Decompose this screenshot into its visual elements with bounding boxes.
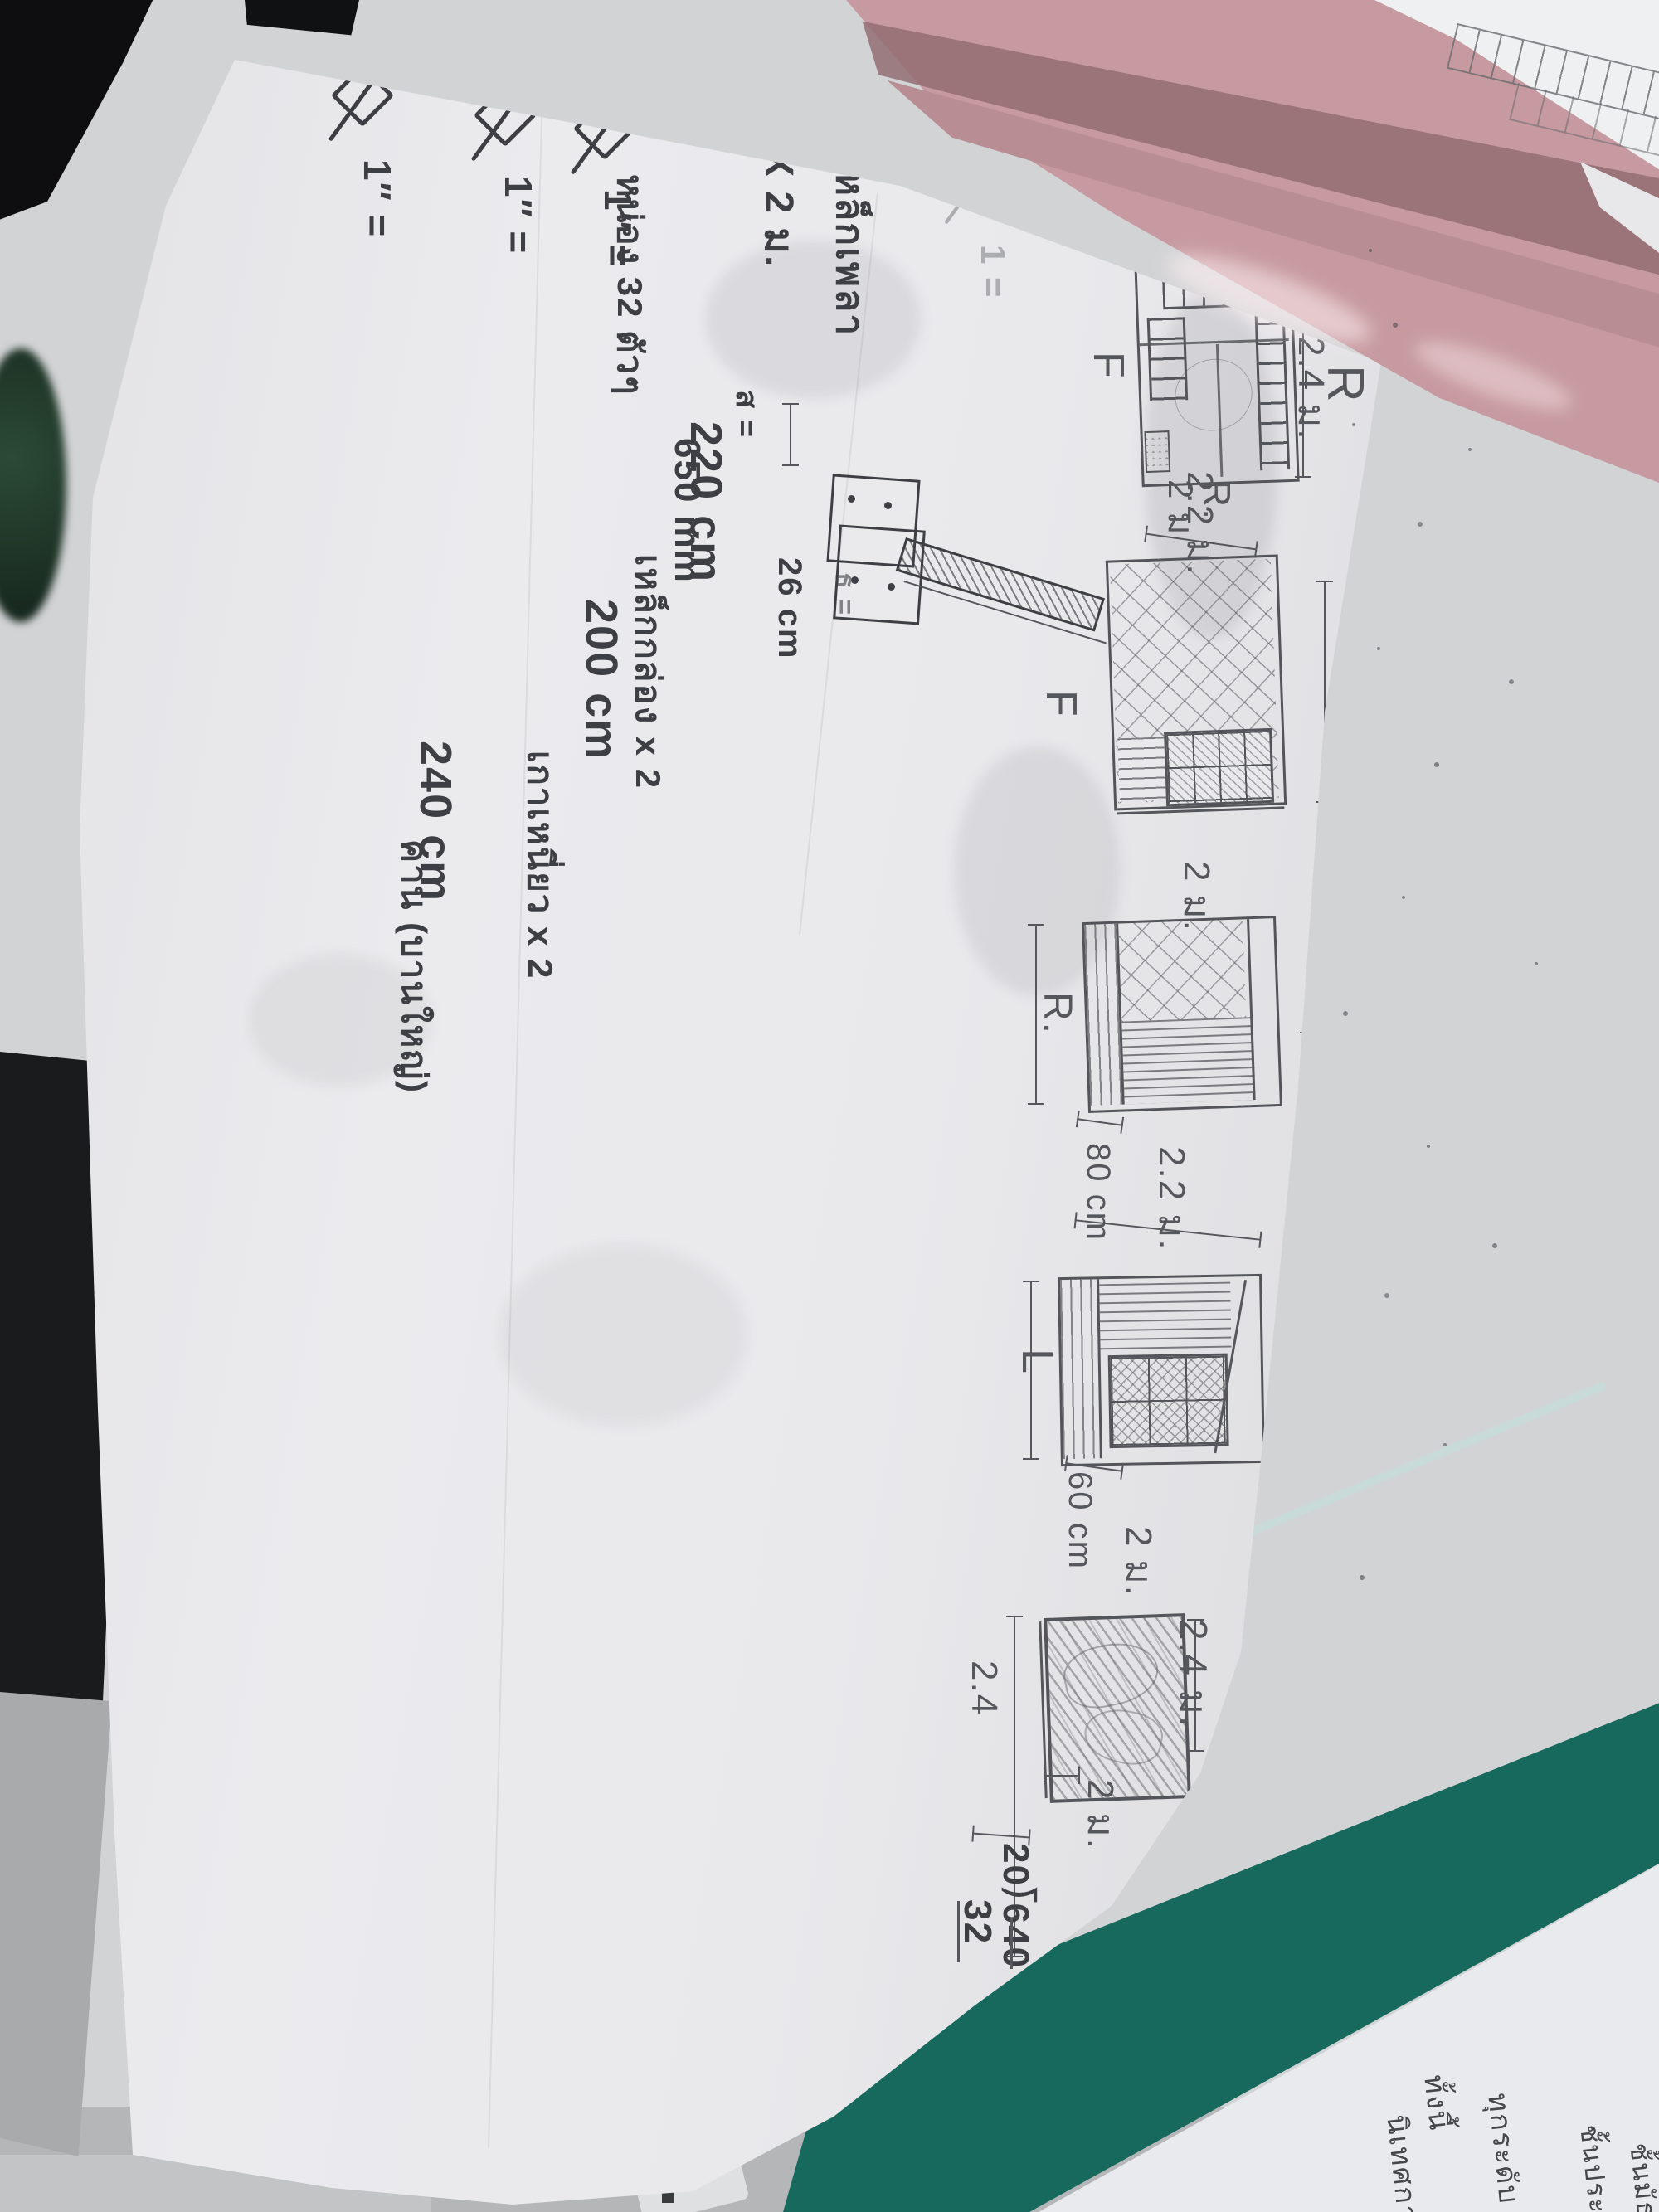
p1-name-right: R [1319,365,1370,404]
bolt-dot [851,576,859,584]
p4-left-band [1060,1279,1102,1459]
p4-dim-right-b: 1 ม. [1340,1378,1375,1446]
p3-dim-below-b: 2.2 ม. [1153,1146,1190,1252]
detail-dim: 26 cm [773,557,806,659]
detail-width-bracket [790,403,791,466]
square-bar-symbol [473,85,531,159]
p5-calc-division: 20⟌640 [997,1843,1034,1969]
p2-door-subpanel [1164,728,1274,806]
square-bar-symbol-faint [946,159,995,223]
p4-dimline-right-a [1292,1271,1294,1325]
p2-dimline-right [1324,581,1326,803]
bolt-dot [848,495,855,503]
p5-dimline-left-tick [972,1833,1030,1839]
note-row-value: 200 cm [579,599,624,761]
note-row-size: 1″ = [599,189,637,268]
photo-of-hand-drawn-gate-sketch: ทั้งนี้ ทุกระดับ นิเทศการสอน ชั้นประถม ช… [0,0,1659,2212]
shaft-bar-hatched [896,537,1105,632]
note-row-desc: เหล็กกล่อง x 2 [630,554,665,790]
p3-dim-below-a: 80 cm [1082,1143,1115,1242]
p3-dim-right: 1 ม. [1339,1043,1375,1115]
bolt-dot [888,583,895,591]
p4-dimline-right-b [1311,1375,1312,1441]
p5-dim-left: 2.4 [966,1660,1002,1716]
p1-side-label: F [1087,352,1130,380]
p4-louver-top [1099,1282,1231,1354]
gray-object-left [0,1692,112,2156]
black-bar-top [245,0,359,38]
note-title-steel-shaft: เหล็กเพลา [831,156,869,337]
bolt-dot [884,502,892,509]
corner-doc-text: ทั้งนี้ [1419,2073,1453,2132]
note-row-desc: เกาเหนี่ยว x 2 [523,751,557,980]
p5-dim-right: 2.4 ม. [1175,1619,1213,1728]
p1-hatch-box [1144,430,1170,473]
square-bar-symbol [572,98,630,173]
note-row-size: 1″ = [358,159,397,238]
p5-dim-bottom: 2 ม. [1082,1779,1118,1850]
gate-panel-4 [1058,1274,1265,1466]
p5-calc-result: 32 [959,1899,997,1945]
p3-dimline-right [1307,1032,1309,1106]
p3-dimline-left [1035,924,1037,1105]
p2-dim-right: 2.4 ม. [1329,715,1367,824]
p4-dim-right-a: 1 ม. [1326,1272,1360,1340]
corner-doc-text: ชั้นมัธยม [1626,2142,1659,2212]
p4-name-left: L [1015,1349,1060,1375]
p4-hatch-box [1108,1354,1229,1448]
p4-dim-below-a: 60 cm [1063,1471,1097,1570]
calc-underline [957,1901,960,1962]
paper-crease [488,116,542,2147]
dirt-speckles [1369,249,1372,252]
p3-name-left: R. [1037,992,1077,1035]
note-title-size: 2″ X 2 ม. [758,93,798,268]
p3-dimline-below-a [1077,1118,1123,1126]
p2-side-label: F [1039,690,1082,718]
p3-louver-band [1121,1017,1255,1104]
note-row-desc: คาน (บานใหญ่) [397,839,431,1094]
note-row-value: 220 cm [684,421,728,583]
p5-tick-bottom [1044,1775,1080,1777]
calc-underline-2 [1010,1918,1013,1969]
note-row-size: 1″ = [499,176,538,255]
p4-dimline-left [1030,1281,1032,1460]
detail-label: ส = [732,390,761,439]
green-leaf-object [0,348,66,622]
gate-panel-3 [1082,916,1282,1113]
p4-dim-below-b: 2 ม. [1120,1526,1156,1597]
square-bar-symbol [330,65,388,139]
black-corner-object [0,0,158,224]
gate-panel-2 [1106,554,1287,810]
note-faint: 1 = [975,245,1010,299]
